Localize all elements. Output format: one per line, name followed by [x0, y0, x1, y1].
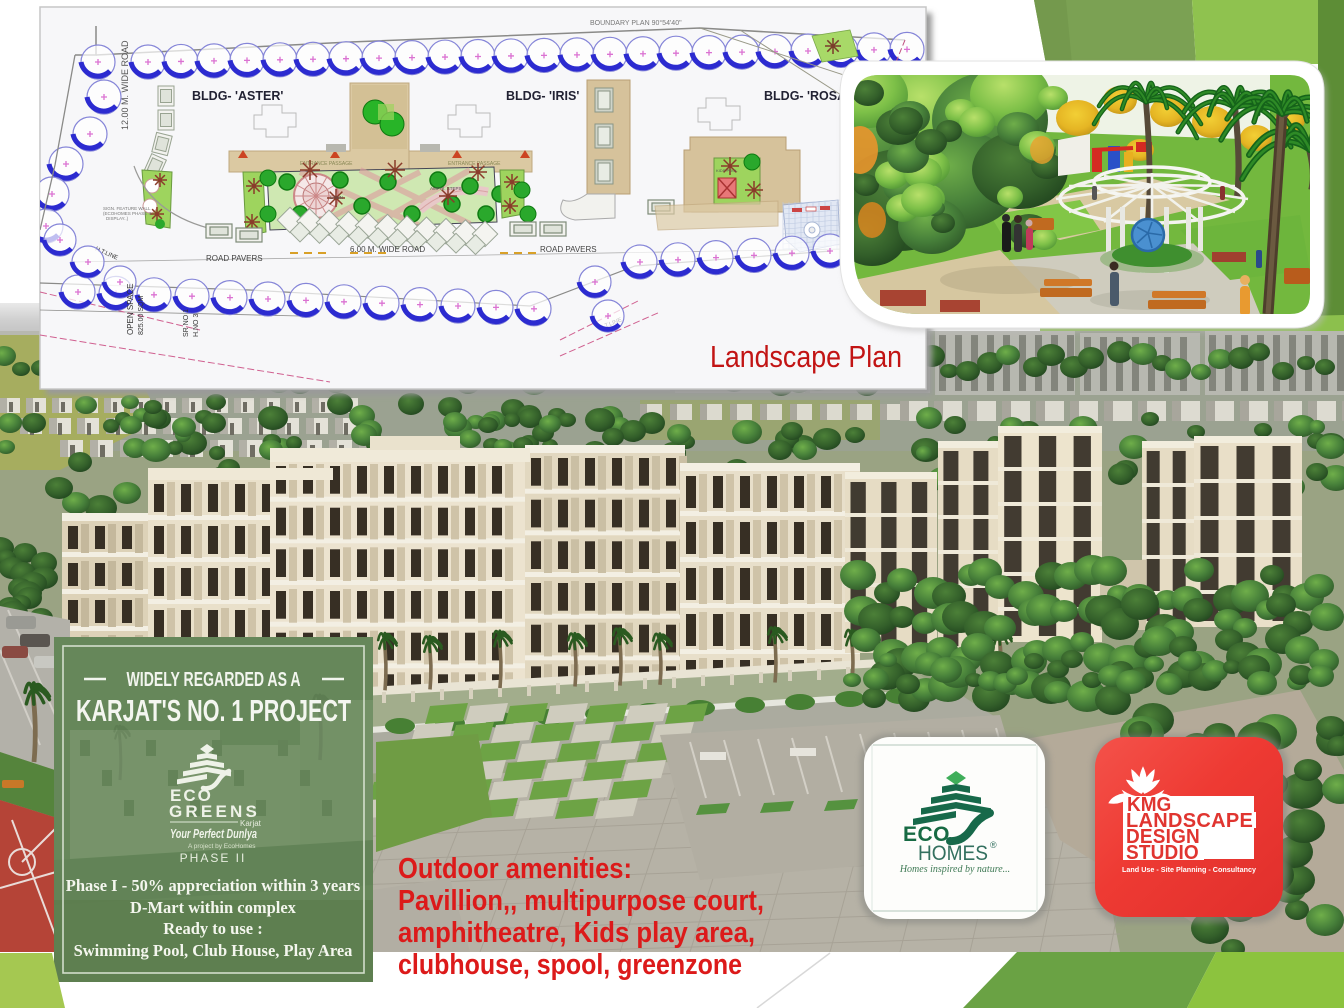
- svg-text:Homes inspired by nature...: Homes inspired by nature...: [899, 864, 1010, 875]
- svg-text:D-Mart within complex: D-Mart within complex: [130, 898, 297, 917]
- svg-text:ROAD PAVERS: ROAD PAVERS: [206, 254, 263, 263]
- svg-text:H.NO 3: H.NO 3: [193, 314, 200, 337]
- svg-text:Your Perfect Dunlya: Your Perfect Dunlya: [170, 827, 257, 841]
- svg-text:A project by EcoHomes: A project by EcoHomes: [188, 843, 256, 850]
- svg-text:Phase I - 50% appreciation wit: Phase I - 50% appreciation within 3 year…: [66, 876, 361, 895]
- svg-text:BLDG- 'IRIS': BLDG- 'IRIS': [506, 89, 579, 103]
- svg-text:BLDG- 'ROSA': BLDG- 'ROSA': [764, 89, 849, 103]
- svg-text:KIDS POOL: KIDS POOL: [716, 168, 738, 173]
- svg-text:PHASE II: PHASE II: [180, 851, 247, 865]
- svg-text:KARJAT'S NO. 1 PROJECT: KARJAT'S NO. 1 PROJECT: [76, 693, 351, 728]
- svg-text:clubhouse, spool, greenzone: clubhouse, spool, greenzone: [398, 949, 742, 981]
- svg-text:Land Use - Site Planning - Con: Land Use - Site Planning - Consultancy: [1122, 865, 1257, 874]
- svg-text:12.00 M. WIDE ROAD: 12.00 M. WIDE ROAD: [120, 40, 130, 130]
- svg-text:AMPHI. STEPS: AMPHI. STEPS: [430, 186, 462, 191]
- svg-text:DISPLAY..): DISPLAY..): [106, 216, 129, 221]
- svg-text:Outdoor amenities:: Outdoor amenities:: [398, 853, 632, 885]
- svg-text:®: ®: [990, 840, 997, 850]
- svg-text:OPEN SPACE: OPEN SPACE: [126, 284, 135, 335]
- svg-text:Ready to use :: Ready to use :: [163, 919, 262, 938]
- svg-text:Swimming Pool, Club House, Pla: Swimming Pool, Club House, Play Area: [74, 941, 353, 960]
- svg-text:BOUNDARY PLAN 90°54'40": BOUNDARY PLAN 90°54'40": [590, 19, 682, 27]
- svg-text:LAWN: LAWN: [330, 195, 343, 200]
- svg-text:HOMES: HOMES: [918, 842, 988, 865]
- svg-text:WIDELY REGARDED AS A: WIDELY REGARDED AS A: [126, 668, 300, 691]
- svg-text:6.00 M. WIDE ROAD: 6.00 M. WIDE ROAD: [350, 245, 425, 254]
- svg-text:amphitheatre, Kids play area,: amphitheatre, Kids play area,: [398, 917, 755, 949]
- svg-text:Landscape Plan: Landscape Plan: [710, 339, 902, 374]
- svg-text:825.00 SQM: 825.00 SQM: [138, 296, 145, 335]
- svg-text:BLDG- 'ASTER': BLDG- 'ASTER': [192, 89, 283, 103]
- svg-text:ENTRANCE PASSAGE: ENTRANCE PASSAGE: [448, 161, 501, 167]
- svg-text:SR NO 1: SR NO 1: [183, 309, 190, 337]
- svg-text:STUDIO: STUDIO: [1126, 842, 1199, 865]
- svg-text:ENTRANCE PASSAGE: ENTRANCE PASSAGE: [300, 161, 353, 167]
- svg-text:Pavillion,, multipurpose court: Pavillion,, multipurpose court,: [398, 885, 764, 917]
- svg-text:ROAD PAVERS: ROAD PAVERS: [540, 245, 597, 254]
